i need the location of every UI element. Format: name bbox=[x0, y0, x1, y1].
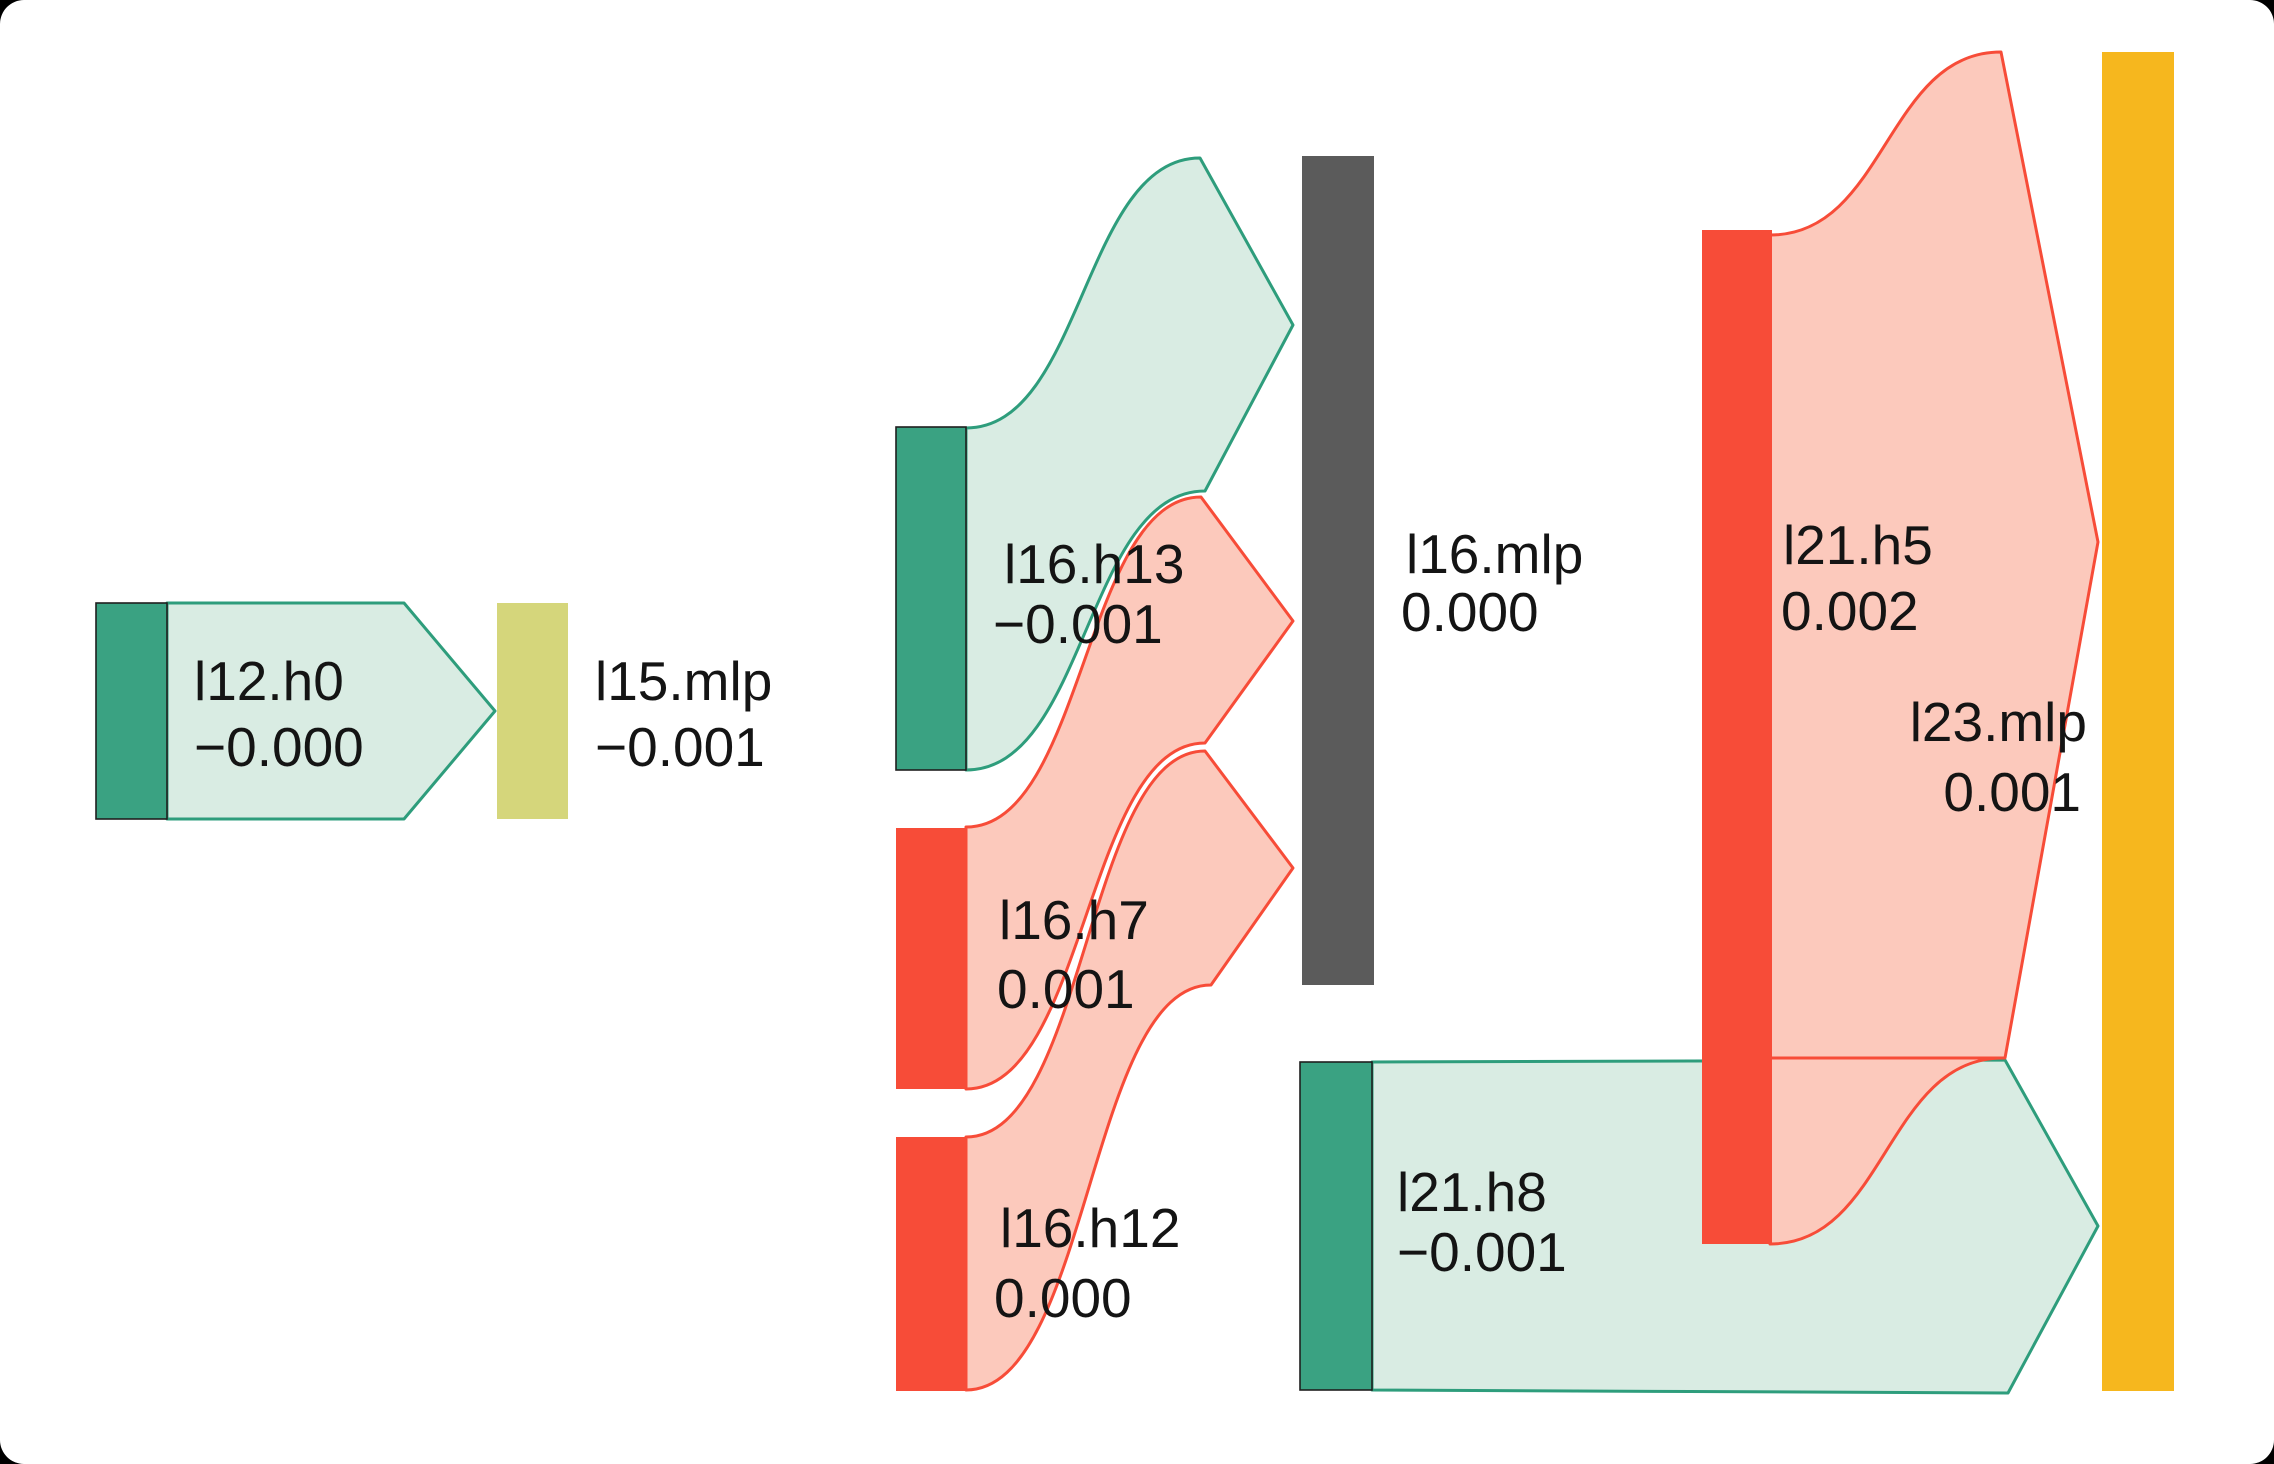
svg-text:l15.mlp: l15.mlp bbox=[595, 650, 772, 712]
svg-text:−0.000: −0.000 bbox=[194, 716, 364, 778]
svg-text:−0.001: −0.001 bbox=[595, 716, 765, 778]
svg-text:0.000: 0.000 bbox=[994, 1267, 1132, 1329]
svg-text:l16.h13: l16.h13 bbox=[1004, 533, 1184, 595]
svg-text:−0.001: −0.001 bbox=[993, 593, 1163, 655]
svg-text:0.001: 0.001 bbox=[997, 958, 1135, 1020]
svg-text:0.002: 0.002 bbox=[1781, 580, 1919, 642]
svg-text:l21.h8: l21.h8 bbox=[1397, 1161, 1547, 1223]
svg-text:l21.h5: l21.h5 bbox=[1783, 514, 1933, 576]
svg-text:l23.mlp: l23.mlp bbox=[1910, 691, 2087, 753]
svg-text:0.000: 0.000 bbox=[1401, 581, 1539, 643]
svg-text:l12.h0: l12.h0 bbox=[194, 650, 344, 712]
svg-text:−0.001: −0.001 bbox=[1397, 1221, 1567, 1283]
svg-text:l16.h7: l16.h7 bbox=[999, 889, 1149, 951]
svg-text:l16.h12: l16.h12 bbox=[1000, 1197, 1180, 1259]
svg-text:l16.mlp: l16.mlp bbox=[1406, 523, 1583, 585]
svg-text:0.001: 0.001 bbox=[1943, 761, 2081, 823]
